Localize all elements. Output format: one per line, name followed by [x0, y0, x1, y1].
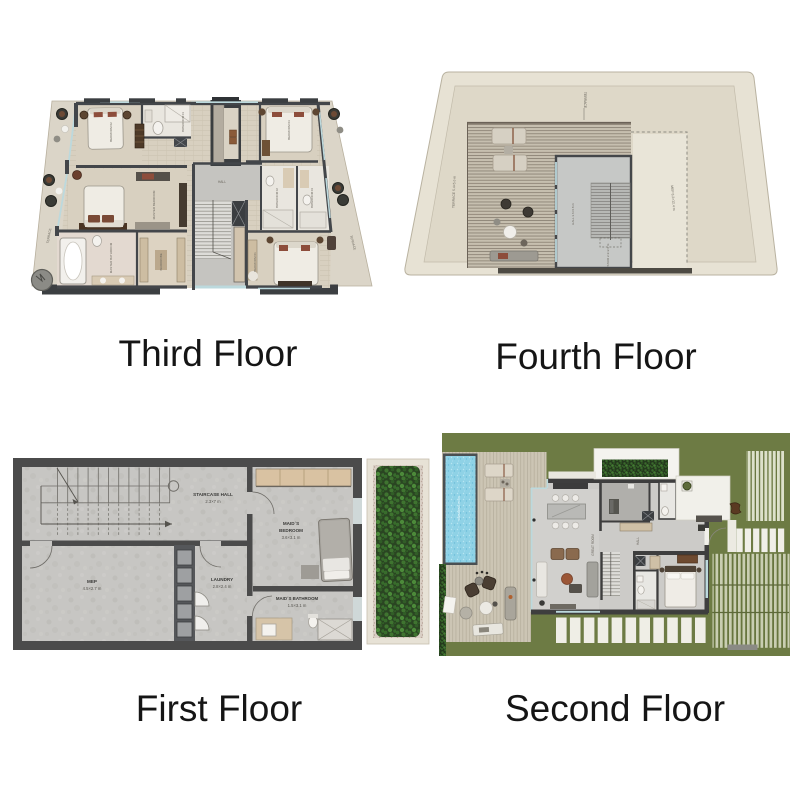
- svg-text:BATHROOM 01: BATHROOM 01: [181, 112, 185, 132]
- svg-text:BEDROOM 03: BEDROOM 03: [287, 120, 291, 140]
- svg-text:WARDROBE: WARDROBE: [159, 253, 163, 271]
- svg-text:HALL 3.6×6.8 m: HALL 3.6×6.8 m: [571, 203, 575, 225]
- svg-text:SWIMMING POOL: SWIMMING POOL: [457, 495, 461, 520]
- svg-text:2.3×7 m: 2.3×7 m: [205, 499, 221, 504]
- svg-text:HALL: HALL: [218, 180, 226, 184]
- svg-text:1.5×3.1 m: 1.5×3.1 m: [288, 603, 307, 608]
- svg-text:BEDROOM 02: BEDROOM 02: [109, 122, 113, 142]
- svg-text:MASTER BATHROOM: MASTER BATHROOM: [109, 242, 113, 273]
- svg-text:MEP: MEP: [87, 579, 97, 584]
- svg-text:TERRACE: TERRACE: [583, 92, 587, 109]
- svg-text:MAID´S BATHROOM: MAID´S BATHROOM: [276, 596, 319, 601]
- svg-text:BATHROOM 03: BATHROOM 03: [310, 188, 314, 208]
- svg-text:4.5×2.7 m: 4.5×2.7 m: [83, 586, 102, 591]
- svg-text:Second Floor: Second Floor: [505, 688, 725, 729]
- svg-text:Fourth Floor: Fourth Floor: [495, 336, 697, 377]
- svg-text:STAIR 2.3×2.6 m: STAIR 2.3×2.6 m: [606, 243, 610, 266]
- svg-text:LAUNDRY: LAUNDRY: [211, 577, 233, 582]
- svg-text:First Floor: First Floor: [136, 688, 303, 729]
- svg-text:MASTER BEDROOM: MASTER BEDROOM: [152, 190, 156, 219]
- svg-text:BEDROOM 01: BEDROOM 01: [253, 252, 257, 272]
- svg-text:HALL: HALL: [636, 537, 640, 545]
- svg-text:2.8×2.4 m: 2.8×2.4 m: [213, 584, 232, 589]
- svg-text:MAID´S: MAID´S: [283, 521, 299, 526]
- svg-text:GREAT ROOM: GREAT ROOM: [591, 534, 595, 556]
- svg-text:3.6×3.1 m: 3.6×3.1 m: [282, 535, 301, 540]
- svg-text:Third Floor: Third Floor: [119, 333, 298, 374]
- svg-text:STAIRCASE HALL: STAIRCASE HALL: [193, 492, 233, 497]
- svg-text:BEDROOM: BEDROOM: [279, 528, 303, 533]
- svg-text:BATHROOM 02: BATHROOM 02: [275, 188, 279, 208]
